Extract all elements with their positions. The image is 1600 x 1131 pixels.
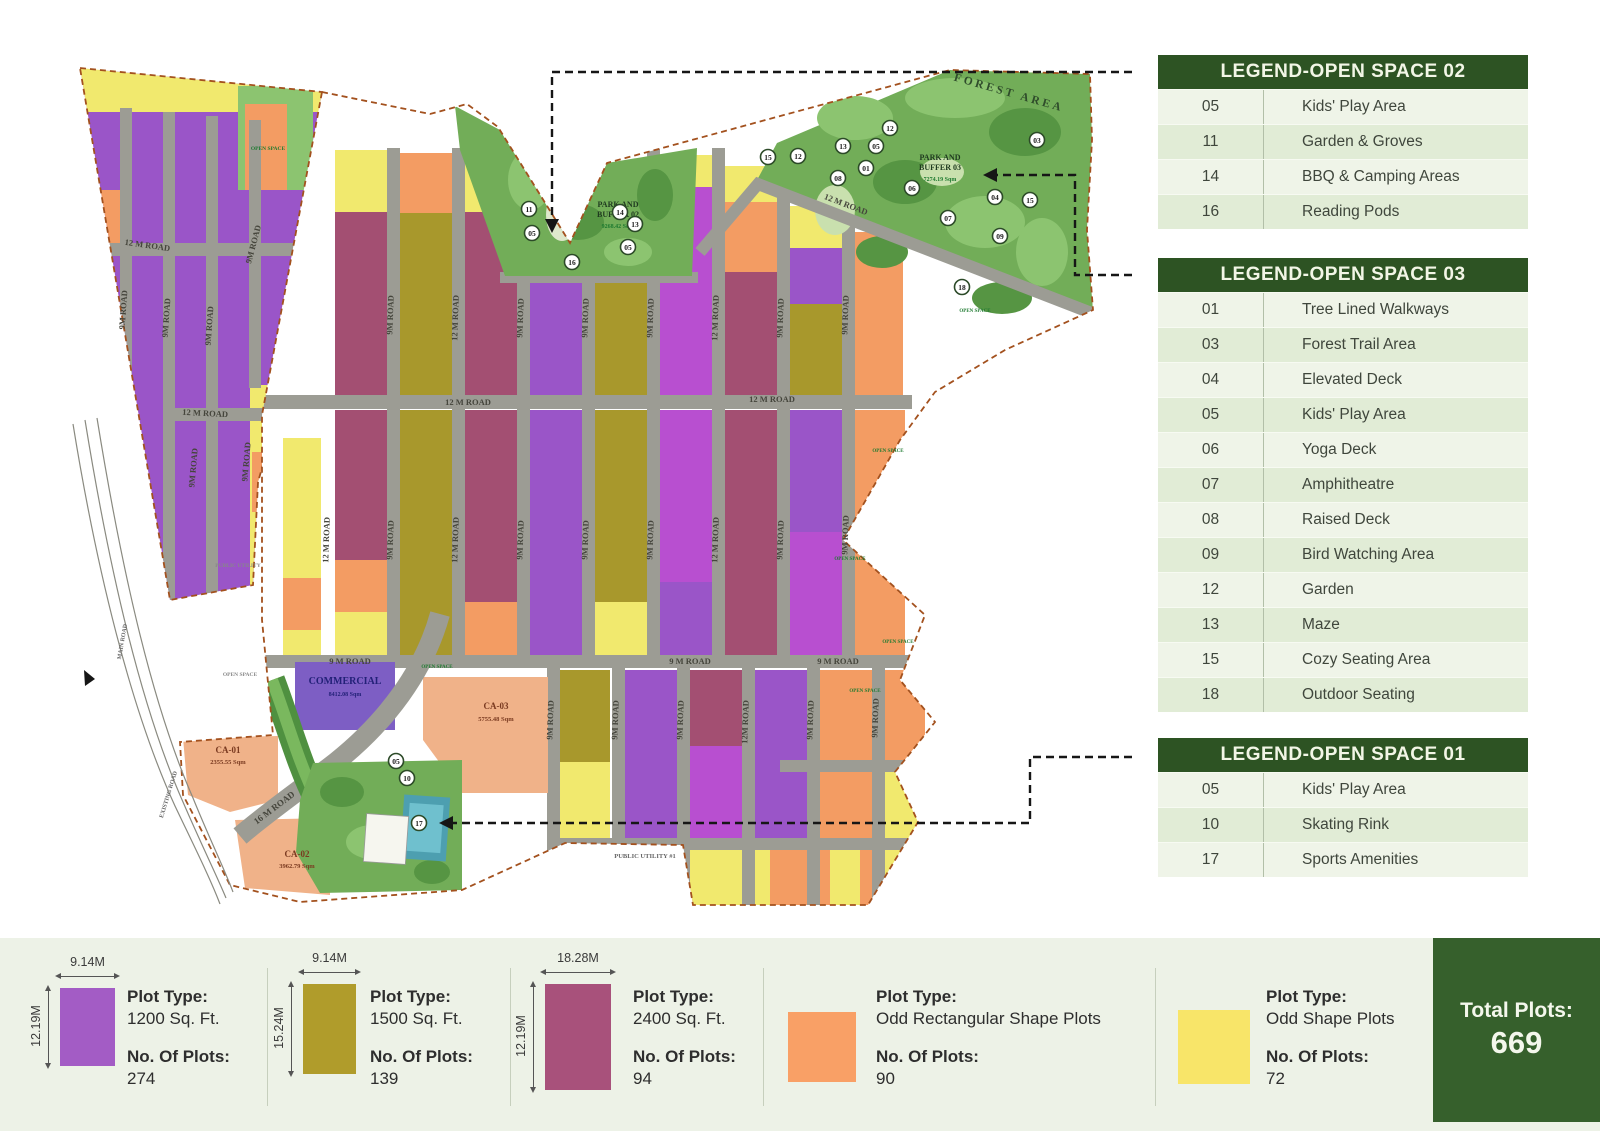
legend-row-number: 11 [1158,125,1263,159]
svg-text:06: 06 [908,184,916,193]
amenity-marker: 01 [859,161,874,176]
svg-text:07: 07 [944,214,952,223]
legend-title: LEGEND-OPEN SPACE 03 [1158,258,1528,292]
map-label: OPEN SPACE [849,689,881,694]
amenity-marker: 13 [836,139,851,154]
park-texture [414,860,450,884]
legend-row: 11Garden & Groves [1158,124,1528,159]
legend-row: 15Cozy Seating Area [1158,642,1528,677]
map-label: 9M ROAD [579,298,590,338]
plot-area [780,760,928,772]
map-label: 9M ROAD [384,520,395,560]
legend-row-number: 16 [1158,195,1263,229]
park-texture [637,169,673,221]
plot-info-value: Odd Rectangular Shape Plots [876,1008,1101,1030]
panel-separator [510,968,511,1106]
plot-area [465,410,517,602]
legend-row: 12Garden [1158,572,1528,607]
map-label: OPEN SPACE [251,146,286,152]
park-texture [989,108,1061,156]
amenity-marker: 05 [389,754,404,769]
svg-text:13: 13 [631,220,639,229]
plot-info-label: Plot Type: [1266,986,1395,1008]
legend-row-label: Raised Deck [1264,503,1528,537]
map-label: 9M ROAD [644,298,655,338]
svg-text:12: 12 [794,152,802,161]
svg-text:05: 05 [624,243,632,252]
master-plan-page: 9M ROAD12 M ROAD9M ROAD9M ROAD9M ROAD12 … [0,0,1600,1131]
plot-area [595,410,647,602]
legend-row-label: Garden [1264,573,1528,607]
legend-row-number: 07 [1158,468,1263,502]
legend-row-label: Reading Pods [1264,195,1528,229]
plot-area [335,410,387,560]
plot-area [206,116,218,600]
legend-row-number: 17 [1158,843,1263,877]
map-label: 9M ROAD [774,298,785,338]
plot-swatch-plot-1500 [303,984,356,1074]
map-label: 9M ROAD [644,520,655,560]
svg-text:08: 08 [834,174,842,183]
plot-info-value: 2400 Sq. Ft. [633,1008,736,1030]
plot-area [595,602,647,655]
legend-row-label: Cozy Seating Area [1264,643,1528,677]
plot-area [770,850,830,905]
map-label: PUBLIC UTILITY [215,563,260,569]
amenity-marker: 10 [400,771,415,786]
map-label: CA-03 [484,701,509,711]
plot-area [465,602,517,655]
plot-info-value: 139 [370,1068,473,1090]
svg-text:03: 03 [1033,136,1041,145]
map-label: 9M ROAD [839,295,850,335]
legend-row: 06Yoga Deck [1158,432,1528,467]
map-label: CA-01 [216,745,241,755]
map-label: 9 M ROAD [817,656,859,666]
plot-info-value: Odd Shape Plots [1266,1008,1395,1030]
plot-area [400,153,452,213]
legend-row-number: 05 [1158,773,1263,807]
map-label: 12 M ROAD [709,295,721,341]
legend-row: 16Reading Pods [1158,194,1528,229]
main-plots [183,70,1102,910]
plot-area [560,670,610,762]
legend-row-label: Garden & Groves [1264,125,1528,159]
dimension-arrow-horizontal [58,976,117,977]
panel-separator [763,968,764,1106]
legend-row-number: 14 [1158,160,1263,194]
total-plots-value: 669 [1491,1025,1543,1061]
plot-area [163,112,175,600]
amenity-marker: 05 [525,226,540,241]
total-plots-label: Total Plots: [1460,999,1573,1023]
plot-info-plot-1500: Plot Type:1500 Sq. Ft.No. Of Plots:139 [370,986,473,1090]
plot-info-plot-odd-shape: Plot Type:Odd Shape PlotsNo. Of Plots:72 [1266,986,1395,1090]
legend-row: 09Bird Watching Area [1158,537,1528,572]
map-label: COMMERCIAL [309,676,382,687]
legend-row-number: 05 [1158,90,1263,124]
legend-row-label: Kids' Play Area [1264,90,1528,124]
plot-info-plot-2400: Plot Type:2400 Sq. Ft.No. Of Plots:94 [633,986,736,1090]
amenity-marker: 08 [831,171,846,186]
plot-area [335,212,387,395]
plot-area [363,814,408,865]
plot-info-label: No. Of Plots: [633,1046,736,1068]
map-label: 9M ROAD [514,298,525,338]
legend-row-number: 10 [1158,808,1263,842]
plot-info-value: 274 [127,1068,230,1090]
map-label: 12 M ROAD [449,295,461,341]
park-texture [1016,218,1068,286]
amenity-marker: 15 [761,150,776,165]
amenity-marker: 03 [1030,133,1045,148]
legend-row-label: Forest Trail Area [1264,328,1528,362]
svg-text:05: 05 [392,757,400,766]
park-texture [320,777,364,807]
amenity-marker: 17 [412,816,427,831]
plot-info-value: 1200 Sq. Ft. [127,1008,230,1030]
legend-row-number: 09 [1158,538,1263,572]
plot-area [725,272,777,395]
amenity-marker: 12 [791,149,806,164]
map-label: 12 M ROAD [749,394,795,404]
legend-row-label: Maze [1264,608,1528,642]
map-label: OPEN SPACE [834,557,866,562]
map-label: 9M ROAD [869,698,880,738]
legend-row-label: Yoga Deck [1264,433,1528,467]
dimension-arrow-horizontal [301,972,358,973]
map-label: BUFFER 03 [919,163,961,172]
plot-area [530,410,582,655]
plot-area [790,304,842,395]
plot-info-label: No. Of Plots: [876,1046,1101,1068]
svg-text:05: 05 [528,229,536,238]
legend-row: 13Maze [1158,607,1528,642]
map-label: 12M ROAD [739,700,751,744]
legend-row-label: Skating Rink [1264,808,1528,842]
plot-info-value: 1500 Sq. Ft. [370,1008,473,1030]
map-label: 7274.19 Sqm [924,177,957,183]
dimension-label-height: 12.19M [514,988,528,1084]
svg-text:18: 18 [958,283,966,292]
legend-row: 14BBQ & Camping Areas [1158,159,1528,194]
plot-area [790,248,842,304]
svg-text:12: 12 [886,124,894,133]
map-label: 9M ROAD [674,700,685,740]
legend-row: 18Outdoor Seating [1158,677,1528,712]
legend-title: LEGEND-OPEN SPACE 02 [1158,55,1528,89]
legend-row-number: 01 [1158,293,1263,327]
map-label: 12 M ROAD [320,517,332,563]
amenity-marker: 16 [565,255,580,270]
dimension-label-height: 15.24M [272,980,286,1076]
svg-text:01: 01 [862,164,870,173]
map-label: CA-02 [285,849,310,859]
legend-row-label: Outdoor Seating [1264,678,1528,712]
svg-text:15: 15 [1026,196,1034,205]
legend-row-number: 08 [1158,503,1263,537]
panel-separator [1155,968,1156,1106]
legend-row: 01Tree Lined Walkways [1158,292,1528,327]
plot-swatch-plot-2400 [545,984,611,1090]
plot-area [400,213,452,395]
map-label: 12 M ROAD [449,517,461,563]
plot-area [335,560,387,612]
legend-row-label: Kids' Play Area [1264,773,1528,807]
amenity-marker: 04 [988,190,1003,205]
svg-text:14: 14 [616,208,624,217]
plot-area [690,670,742,746]
plot-info-label: Plot Type: [876,986,1101,1008]
legend-row-label: Elevated Deck [1264,363,1528,397]
map-label: OPEN SPACE [872,449,904,454]
svg-text:10: 10 [403,774,411,783]
legend-row-number: 05 [1158,398,1263,432]
plot-area [335,612,387,655]
plot-info-value: 94 [633,1068,736,1090]
plot-swatch-plot-1200 [60,988,115,1066]
map-label: OPEN SPACE [223,672,258,678]
amenity-marker: 18 [955,280,970,295]
svg-text:16: 16 [568,258,576,267]
dimension-arrow-vertical [533,984,534,1090]
legend-row-label: Amphitheatre [1264,468,1528,502]
legend-row: 05Kids' Play Area [1158,89,1528,124]
plot-area [885,670,925,760]
legend-row: 08Raised Deck [1158,502,1528,537]
map-label: 9M ROAD [544,700,555,740]
map-label: 9M ROAD [609,700,620,740]
legend-row-number: 12 [1158,573,1263,607]
legend-row-number: 18 [1158,678,1263,712]
amenity-marker: 13 [628,217,643,232]
amenity-marker: 15 [1023,193,1038,208]
plot-info-value: 90 [876,1068,1101,1090]
svg-text:17: 17 [415,819,423,828]
plot-area [660,410,712,582]
amenity-marker: 14 [613,205,628,220]
arrowhead-icon [84,670,95,686]
park-texture [945,196,1025,248]
legend-row-number: 06 [1158,433,1263,467]
amenity-marker: 05 [621,240,636,255]
svg-text:15: 15 [764,153,772,162]
legend-row: 07Amphitheatre [1158,467,1528,502]
dimension-label-height: 12.19M [29,978,43,1074]
legend-row-number: 15 [1158,643,1263,677]
legend-row-label: Bird Watching Area [1264,538,1528,572]
legend-row: 05Kids' Play Area [1158,772,1528,807]
dimension-label-width: 9.14M [40,955,135,969]
plot-area [885,760,925,905]
map-label: PUBLIC UTILITY #1 [614,853,676,860]
amenity-marker: 07 [941,211,956,226]
dimension-arrow-vertical [291,984,292,1074]
map-label: 9M ROAD [839,515,850,555]
dimension-arrow-vertical [48,988,49,1066]
legend-row-label: Sports Amenities [1264,843,1528,877]
plot-swatch-plot-odd-shape [1178,1010,1250,1084]
map-label: PARK AND [920,153,961,162]
master-plan-map: 9M ROAD12 M ROAD9M ROAD9M ROAD9M ROAD12 … [0,0,1135,910]
map-label: 2355.55 Sqm [210,759,246,766]
dimension-arrow-horizontal [543,972,613,973]
plot-area [660,582,712,655]
plot-info-label: No. Of Plots: [127,1046,230,1068]
plot-area [595,270,647,395]
legend-row: 10Skating Rink [1158,807,1528,842]
amenity-marker: 12 [883,121,898,136]
svg-text:11: 11 [525,205,532,214]
plot-area [262,395,912,409]
dimension-label-width: 9.14M [283,951,376,965]
plot-info-plot-1200: Plot Type:1200 Sq. Ft.No. Of Plots:274 [127,986,230,1090]
map-label: 9 M ROAD [329,656,371,666]
legend-row-number: 03 [1158,328,1263,362]
legend-row-number: 04 [1158,363,1263,397]
dimension-label-width: 18.28M [525,951,631,965]
legend-row-label: BBQ & Camping Areas [1264,160,1528,194]
legend-row: 04Elevated Deck [1158,362,1528,397]
amenity-marker: 09 [993,229,1008,244]
svg-text:09: 09 [996,232,1004,241]
svg-text:05: 05 [872,142,880,151]
map-label: 8412.08 Sqm [329,692,362,698]
map-label: 9M ROAD [774,520,785,560]
plot-info-value: 72 [1266,1068,1395,1090]
map-label: 9M ROAD [579,520,590,560]
svg-text:13: 13 [839,142,847,151]
legend-title: LEGEND-OPEN SPACE 01 [1158,738,1528,772]
plot-area [530,268,582,395]
plot-area [725,410,777,655]
plot-info-label: Plot Type: [370,986,473,1008]
plot-info-label: No. Of Plots: [370,1046,473,1068]
plot-area [790,532,842,655]
panel-separator [267,968,268,1106]
map-label: 5755.48 Sqm [478,716,514,723]
map-label: 9M ROAD [514,520,525,560]
map-label: 9M ROAD [384,295,395,335]
plot-area [560,762,610,842]
amenity-marker: 11 [522,202,537,217]
map-label: OPEN SPACE [959,309,991,314]
amenity-marker: 05 [869,139,884,154]
plot-area [283,578,321,630]
total-plots-badge: Total Plots: 669 [1433,938,1600,1122]
plot-area [335,150,387,212]
map-label: OPEN SPACE [421,665,453,670]
legend-open-space-01: LEGEND-OPEN SPACE 0105Kids' Play Area10S… [1158,738,1528,877]
svg-text:04: 04 [991,193,999,202]
legend-row: 17Sports Amenities [1158,842,1528,877]
amenity-marker: 06 [905,181,920,196]
legend-row: 03Forest Trail Area [1158,327,1528,362]
plot-area [790,410,842,532]
plot-info-label: Plot Type: [127,986,230,1008]
plot-info-label: No. Of Plots: [1266,1046,1395,1068]
legend-row-label: Kids' Play Area [1264,398,1528,432]
plot-swatch-plot-odd-rect [788,1012,856,1082]
map-label: 12 M ROAD [709,517,721,563]
legend-open-space-03: LEGEND-OPEN SPACE 0301Tree Lined Walkway… [1158,258,1528,712]
map-label: OPEN SPACE [882,640,914,645]
map-label: 9M ROAD [804,700,815,740]
map-label: 9 M ROAD [669,656,711,666]
legend-row: 05Kids' Play Area [1158,397,1528,432]
plot-area [120,108,132,600]
plot-area [85,243,300,256]
plot-info-plot-odd-rect: Plot Type:Odd Rectangular Shape PlotsNo.… [876,986,1101,1090]
legend-row-label: Tree Lined Walkways [1264,293,1528,327]
legend-row-number: 13 [1158,608,1263,642]
map-label: 3962.79 Sqm [279,863,315,870]
plot-info-label: Plot Type: [633,986,736,1008]
map-label: 12 M ROAD [445,397,491,407]
legend-open-space-02: LEGEND-OPEN SPACE 0205Kids' Play Area11G… [1158,55,1528,229]
